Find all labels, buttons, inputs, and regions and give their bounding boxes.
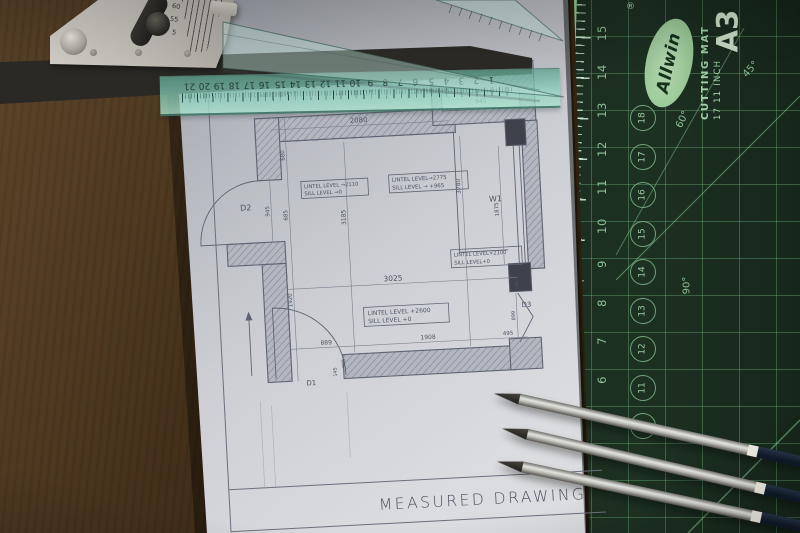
set-square-large <box>223 22 564 97</box>
set-square-small <box>436 0 563 41</box>
photo-drafting-scene: 15141312111098765 181716151413121110 ® A… <box>0 0 800 533</box>
set-squares <box>0 0 800 533</box>
